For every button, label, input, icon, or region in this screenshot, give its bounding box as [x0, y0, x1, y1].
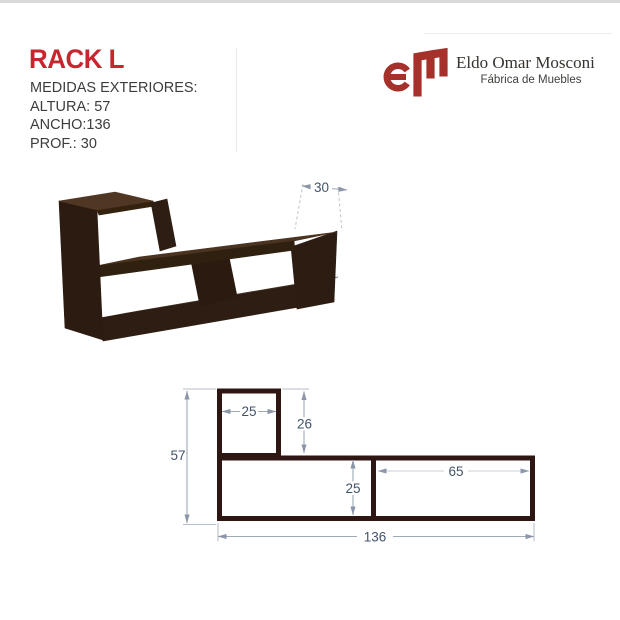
dim-label-top-width: 25: [241, 404, 256, 419]
dim-label-right-width: 65: [448, 464, 463, 479]
spec-sheet-page: RACK L MEDIDAS EXTERIORES: ALTURA: 57 AN…: [0, 0, 620, 620]
dim-label-total-height: 57: [170, 448, 185, 463]
dim-label-top-height: 26: [297, 417, 312, 432]
dimension-diagram: 57 25 26 25 65 136: [0, 0, 620, 620]
diagram-top-box-outline: [220, 391, 279, 456]
dim-label-lower-height: 25: [345, 481, 360, 496]
dim-label-total-width: 136: [364, 530, 387, 545]
